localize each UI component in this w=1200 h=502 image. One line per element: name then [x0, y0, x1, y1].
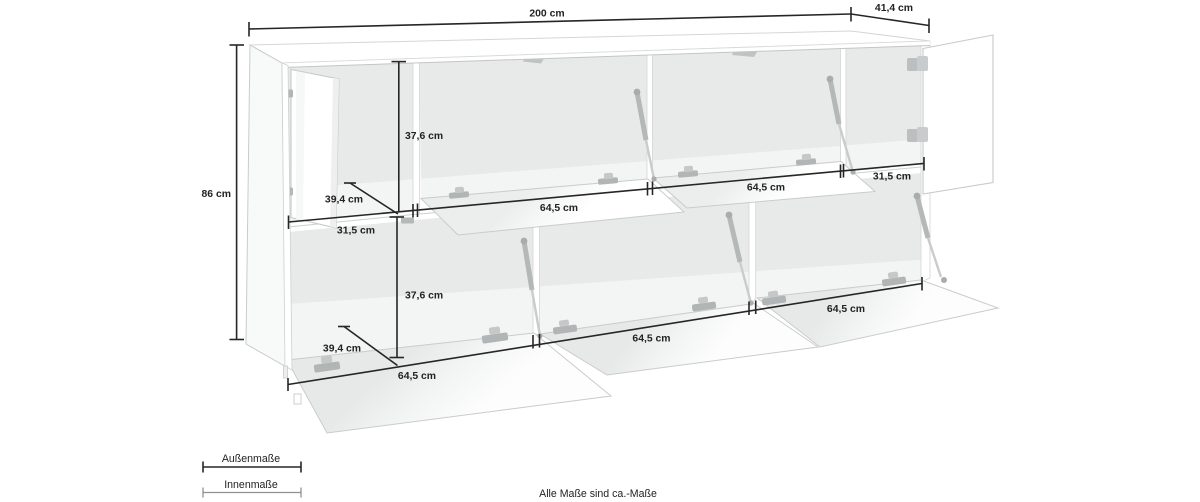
svg-text:39,4 cm: 39,4 cm: [325, 194, 363, 205]
svg-text:64,5 cm: 64,5 cm: [540, 203, 578, 214]
svg-text:31,5 cm: 31,5 cm: [337, 225, 375, 236]
svg-text:86 cm: 86 cm: [202, 189, 231, 200]
svg-text:37,6 cm: 37,6 cm: [405, 290, 443, 301]
svg-text:64,5 cm: 64,5 cm: [747, 183, 785, 194]
svg-text:31,5 cm: 31,5 cm: [873, 172, 911, 183]
svg-text:39,4 cm: 39,4 cm: [323, 344, 361, 355]
svg-text:41,4 cm: 41,4 cm: [875, 3, 913, 14]
svg-text:64,5 cm: 64,5 cm: [632, 333, 670, 344]
svg-text:Alle Maße sind ca.-Maße: Alle Maße sind ca.-Maße: [539, 488, 657, 500]
svg-text:Außenmaße: Außenmaße: [222, 453, 280, 465]
svg-text:Innenmaße: Innenmaße: [224, 479, 278, 491]
svg-text:64,5 cm: 64,5 cm: [398, 371, 436, 382]
svg-text:200 cm: 200 cm: [529, 8, 564, 19]
svg-text:64,5 cm: 64,5 cm: [827, 304, 865, 315]
svg-text:37,6 cm: 37,6 cm: [405, 131, 443, 142]
